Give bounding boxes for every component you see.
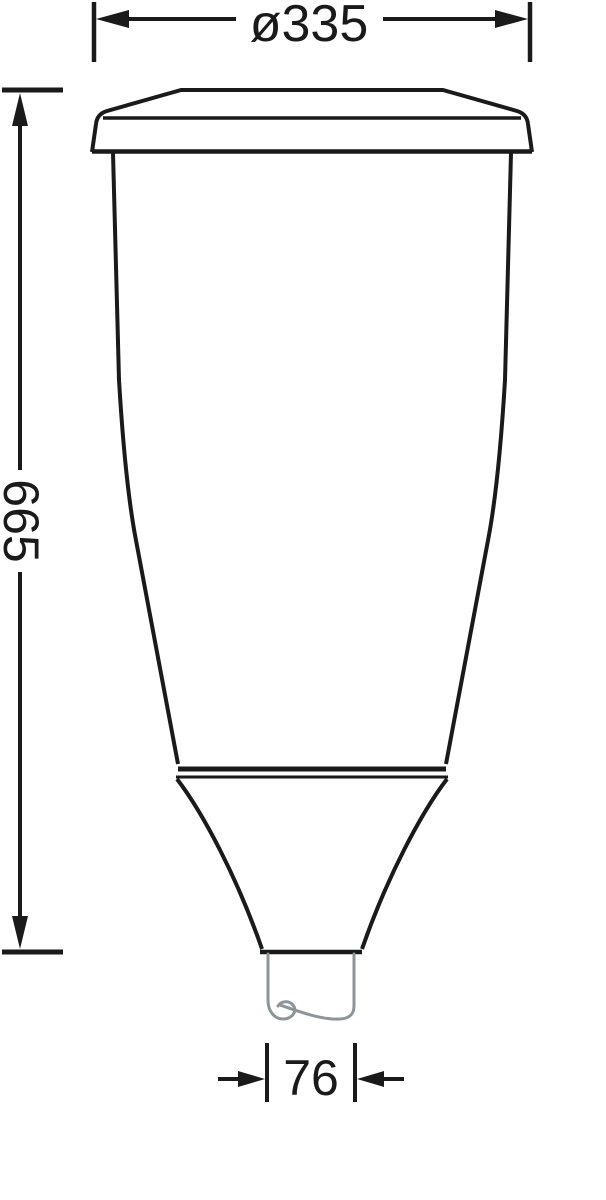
pole-break-group (268, 954, 354, 1019)
arrowhead-left-icon (96, 10, 129, 28)
dimension-spigot: 76 (218, 1043, 404, 1106)
spigot-dimension-label: 76 (283, 1050, 339, 1106)
funnel-left-edge (177, 779, 262, 949)
diameter-dimension-label: ø335 (250, 0, 369, 53)
funnel-right-edge (362, 779, 447, 949)
arrowhead-down-icon (12, 916, 28, 949)
body-left-edge (113, 153, 178, 764)
dimension-diameter: ø335 (94, 0, 530, 62)
luminaire-dimension-drawing: ø335 665 (0, 0, 606, 1200)
height-dimension-label: 665 (0, 479, 49, 562)
arrowhead-up-icon (12, 93, 28, 126)
luminaire-outline-group (92, 90, 532, 952)
pole-right-edge-break-line (280, 954, 354, 1019)
dimension-height: 665 (0, 90, 63, 952)
canopy-outer-edge (92, 90, 532, 152)
arrowhead-right-icon (495, 10, 528, 28)
technical-drawing-canvas: ø335 665 (0, 0, 606, 1200)
arrowhead-inward-right-icon (357, 1071, 384, 1087)
arrowhead-inward-left-icon (238, 1071, 265, 1087)
body-right-edge (446, 153, 511, 764)
